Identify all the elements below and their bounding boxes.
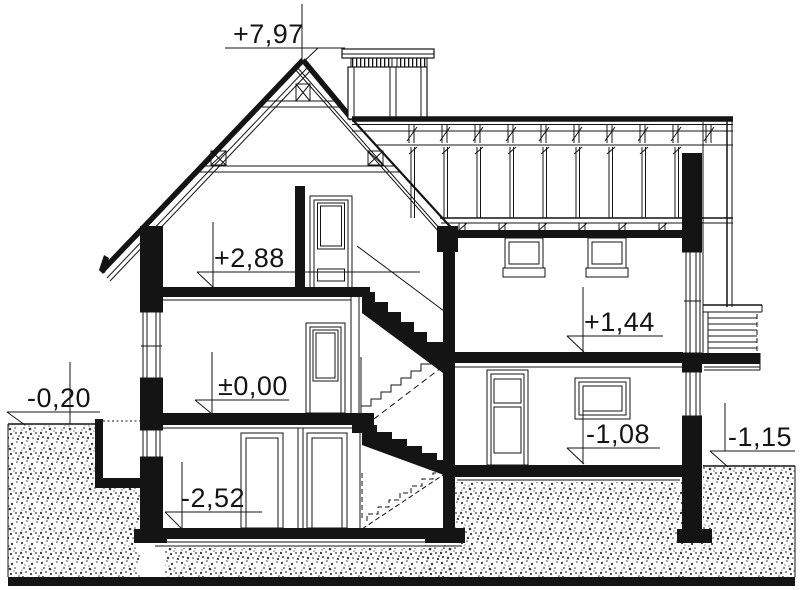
level-marker-basement-floor: -2,52 (165, 462, 262, 529)
basement-door-left (241, 433, 283, 528)
ground-base-line (8, 577, 795, 586)
mezzanine-window-left (503, 238, 545, 277)
mezzanine-window-right (586, 238, 628, 277)
level-marker-mezzanine-floor: +1,44 (567, 287, 663, 352)
stairwell-wall (443, 238, 455, 538)
cross-section-drawing: +7,97 +2,88 ±0,00 -2,52 -0,20 +1,44 -1,0… (0, 0, 800, 590)
ridge-joint-symbol (296, 84, 310, 101)
window-well (95, 419, 140, 488)
elevation-label-attic-floor: +2,88 (214, 243, 285, 273)
right-wall-window-lower (682, 372, 702, 416)
elevation-label-basement-floor: -2,52 (181, 483, 245, 513)
elevation-label-ridge: +7,97 (233, 19, 304, 49)
flat-roof-structure (352, 121, 733, 307)
attic-door (310, 196, 352, 288)
mezzanine-ceiling-slab (443, 230, 683, 238)
stair-flight-basement-to-lower (367, 473, 443, 521)
level-marker-lower-ground-floor: -1,08 (567, 398, 660, 464)
left-wall-attic (140, 226, 163, 312)
stair-flight-ground-to-mezzanine (361, 357, 443, 413)
flat-roof-deck (352, 119, 733, 125)
chimney (342, 49, 434, 119)
left-wall-basement (140, 457, 163, 532)
right-wall-lower (682, 416, 702, 532)
level-marker-terrain-right: -1,15 (710, 403, 795, 467)
lower-ground-door (487, 370, 528, 465)
purlin-joint-right (368, 151, 383, 165)
right-wall-upper (682, 153, 702, 252)
level-marker-ground-floor: ±0,00 (195, 352, 289, 414)
level-marker-attic-floor: +2,88 (197, 222, 420, 288)
left-wall-window-ground (140, 312, 163, 378)
right-wall-balcony-door (682, 252, 702, 353)
basement-door-right (307, 433, 347, 528)
lower-ground-floor-slab (455, 465, 683, 477)
elevation-label-terrain-left: -0,20 (27, 383, 91, 413)
balcony-rail-slats (708, 318, 757, 348)
cross-section-page: +7,97 +2,88 ±0,00 -2,52 -0,20 +1,44 -1,0… (0, 0, 800, 590)
right-wall-footing (677, 529, 712, 543)
elevation-label-mezzanine-floor: +1,44 (584, 307, 655, 337)
mezzanine-floor-slab (443, 352, 683, 363)
left-wall-window-basement (140, 430, 163, 457)
basement-floor-slab (148, 528, 465, 539)
right-wall-mid (682, 353, 702, 372)
stairs (357, 246, 452, 529)
ground-floor-slab (148, 413, 374, 425)
ground-floor-door (306, 323, 345, 413)
chimney-body (348, 67, 427, 119)
elevation-label-terrain-right: -1,15 (728, 422, 792, 452)
level-marker-terrain-left: -0,20 (7, 362, 100, 425)
level-marker-ridge: +7,97 (225, 4, 345, 70)
elevation-label-ground-floor: ±0,00 (218, 371, 288, 401)
stair-flight-ground-to-lower (362, 425, 452, 478)
elevation-label-lower-ground-floor: -1,08 (586, 419, 650, 449)
